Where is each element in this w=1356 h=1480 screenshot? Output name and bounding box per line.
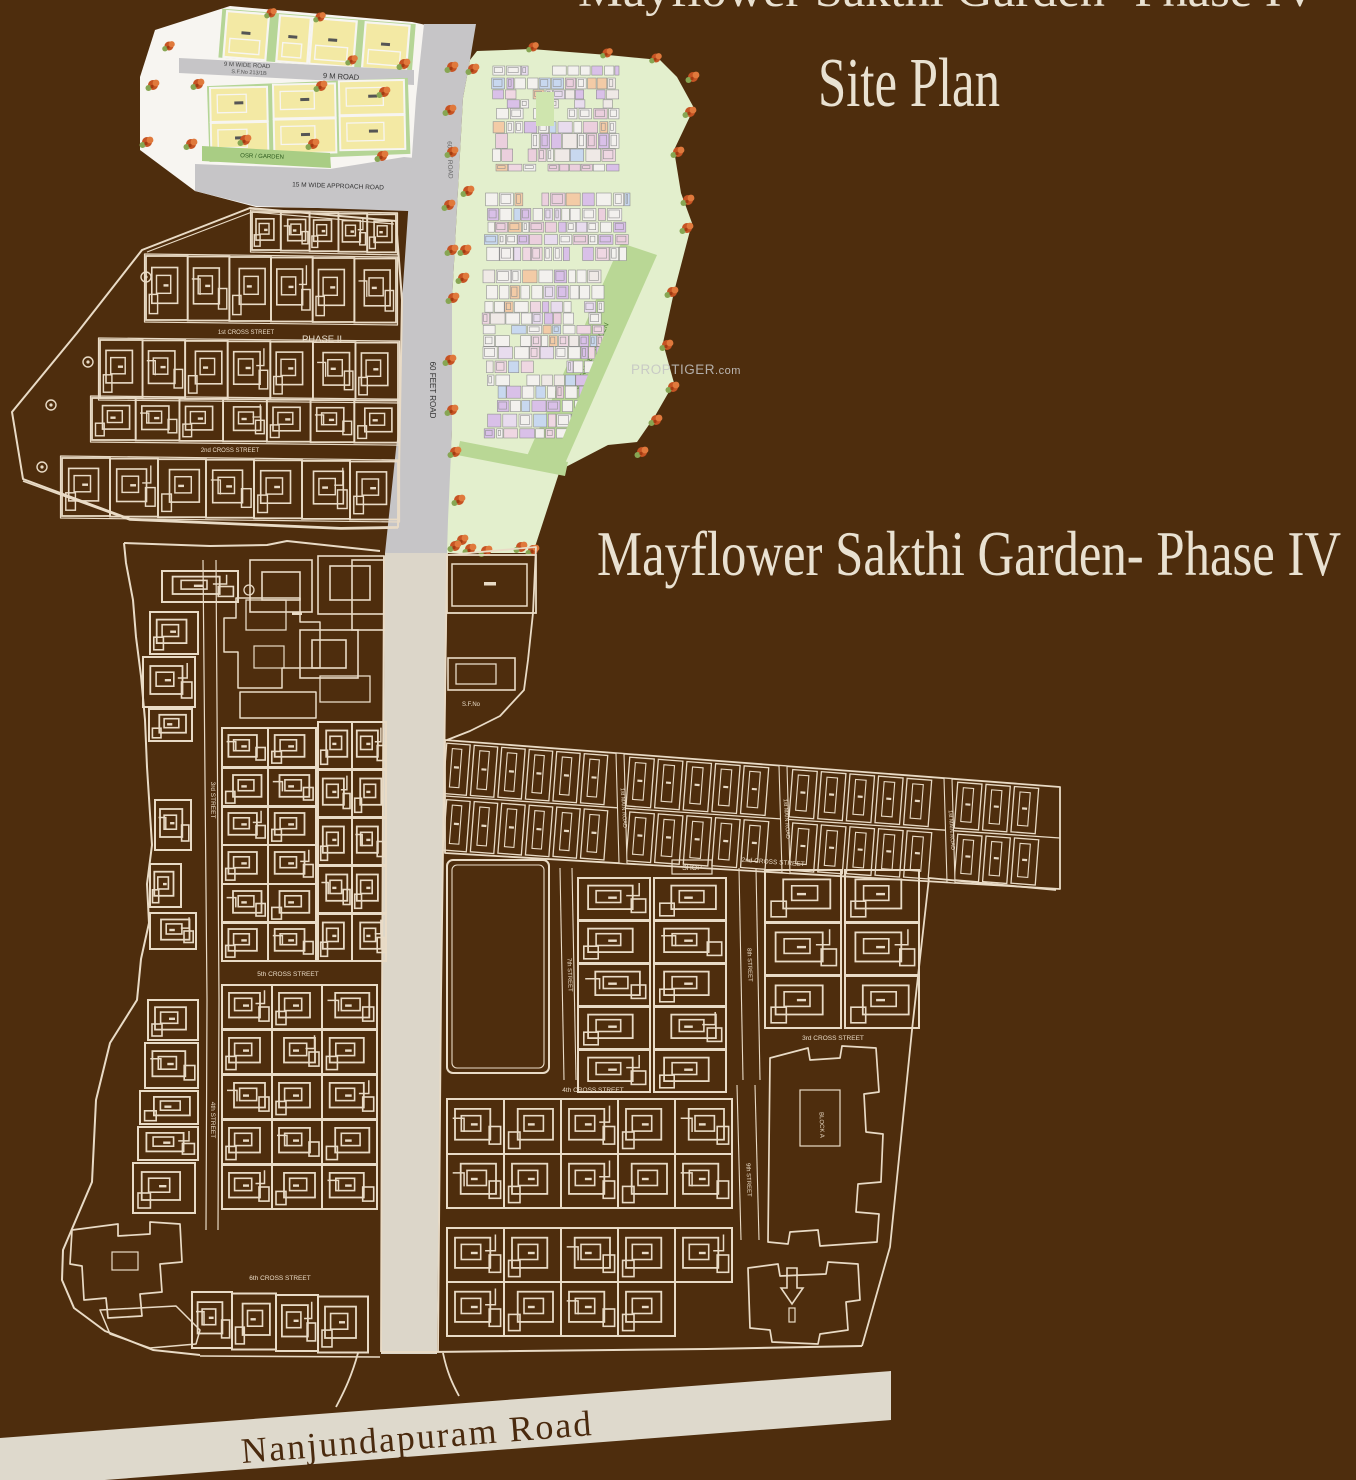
svg-text:6th CROSS STREET: 6th CROSS STREET [249, 1275, 310, 1282]
svg-text:5th CROSS STREET: 5th CROSS STREET [257, 971, 318, 978]
svg-text:7th STREET: 7th STREET [565, 958, 572, 992]
svg-text:SHOP: SHOP [682, 865, 702, 872]
svg-text:60 FEET ROAD: 60 FEET ROAD [428, 362, 437, 419]
svg-text:9th STREET: 9th STREET [744, 1163, 751, 1197]
svg-text:3rd CROSS STREET: 3rd CROSS STREET [802, 1035, 864, 1042]
svg-text:4th CROSS STREET: 4th CROSS STREET [562, 1087, 623, 1094]
svg-text:Site Plan: Site Plan [818, 45, 1000, 122]
svg-text:8th STREET: 8th STREET [745, 948, 752, 982]
svg-text:60 FT ROAD: 60 FT ROAD [445, 141, 453, 179]
svg-text:3rd STREET: 3rd STREET [209, 782, 216, 819]
svg-text:2nd CROSS STREET: 2nd CROSS STREET [201, 448, 260, 454]
svg-text:4th STREET: 4th STREET [209, 1102, 216, 1139]
svg-text:Mayflower Sakthi Garden- Phase: Mayflower Sakthi Garden- Phase IV [597, 518, 1341, 589]
svg-text:Mayflower Sakthi Garden- Phase: Mayflower Sakthi Garden- Phase IV [578, 0, 1318, 17]
svg-text:BLOCK A: BLOCK A [818, 1112, 825, 1138]
svg-text:PROPTIGER.com: PROPTIGER.com [631, 362, 741, 377]
svg-text:S.F.No: S.F.No [462, 702, 481, 708]
svg-text:1st CROSS STREET: 1st CROSS STREET [218, 330, 275, 336]
